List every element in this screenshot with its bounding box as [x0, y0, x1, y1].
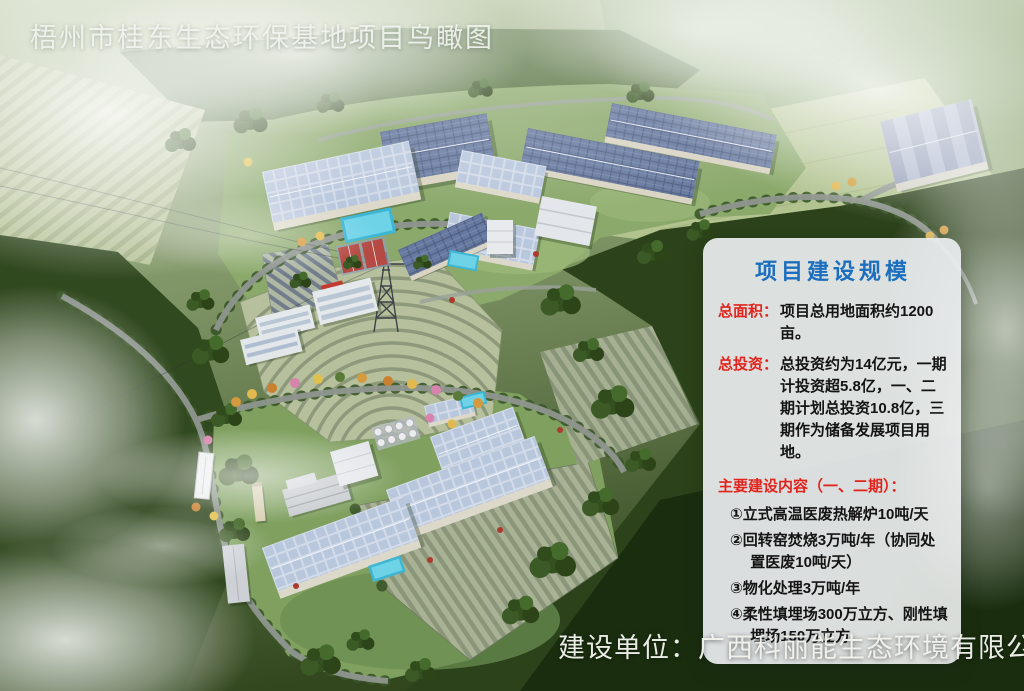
total-area-label: 总面积：	[718, 301, 780, 345]
total-investment-value: 总投资约为14亿元，一期计投资超5.8亿，一、二期计划总投资10.8亿，三期作为…	[780, 354, 948, 464]
aerial-render-poster: 梧州市桂东生态环保基地项目鸟瞰图 项目建设规模 总面积： 项目总用地面积约120…	[0, 0, 1024, 691]
panel-title: 项目建设规模	[718, 254, 948, 286]
total-investment-label: 总投资：	[718, 354, 780, 464]
construction-item-2: ②回转窑焚烧3万吨/年（协同处置医废10吨/天）	[730, 530, 948, 574]
construction-item-1: ①立式高温医废热解炉10吨/天	[730, 504, 948, 526]
total-area-row: 总面积： 项目总用地面积约1200亩。	[718, 301, 948, 345]
project-scale-panel: 项目建设规模 总面积： 项目总用地面积约1200亩。 总投资： 总投资约为14亿…	[703, 238, 961, 664]
total-investment-row: 总投资： 总投资约为14亿元，一期计投资超5.8亿，一、二期计划总投资10.8亿…	[718, 354, 948, 464]
builder-caption: 建设单位：广西科丽能生态环境有限公司	[558, 626, 1024, 665]
total-area-value: 项目总用地面积约1200亩。	[780, 301, 948, 345]
page-title: 梧州市桂东生态环保基地项目鸟瞰图	[30, 16, 494, 55]
building-white-tower	[487, 220, 516, 258]
construction-content-heading: 主要建设内容（一、二期）：	[718, 477, 948, 497]
construction-item-3: ③物化处理3万吨/年	[730, 578, 948, 600]
